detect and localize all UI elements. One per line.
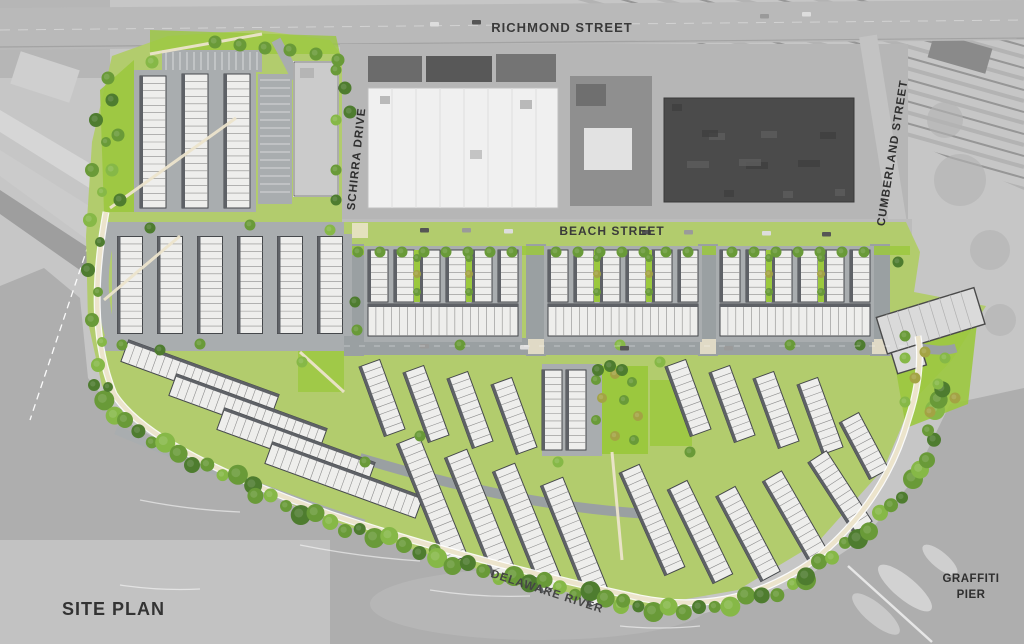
townhouse-row: [278, 237, 303, 334]
parked-car: [430, 22, 439, 27]
graffiti-pier-label-line1: GRAFFITI: [938, 572, 1004, 588]
townhouse-row: [720, 304, 870, 336]
townhouse-row: [772, 250, 792, 302]
townhouse-row: [600, 250, 620, 302]
townhouse-row: [542, 370, 562, 450]
townhouse-row: [720, 250, 740, 302]
townhouse-row: [420, 250, 440, 302]
townhouse-row: [140, 76, 166, 208]
parking-lot: [162, 50, 262, 72]
townhouse-row: [224, 74, 250, 208]
parked-car: [822, 232, 831, 237]
parked-car: [802, 12, 811, 17]
graffiti-pier-label-line2: PIER: [938, 588, 1004, 604]
townhouse-row: [368, 250, 388, 302]
parked-car: [504, 229, 513, 234]
townhouse-row: [394, 250, 414, 302]
townhouse-row: [574, 250, 594, 302]
townhouse-row: [498, 250, 518, 302]
graffiti-pier-label: GRAFFITI PIER: [938, 572, 1004, 603]
townhouse-row: [368, 304, 518, 336]
parked-car: [762, 231, 771, 236]
townhouse-row: [678, 250, 698, 302]
townhouse-row: [198, 237, 223, 334]
townhouse-row: [446, 250, 466, 302]
townhouse-row: [472, 250, 492, 302]
townhouse-row: [566, 370, 586, 450]
townhouse-row: [626, 250, 646, 302]
richmond-street-label: RICHMOND STREET: [462, 20, 662, 35]
parked-car: [760, 14, 769, 19]
townhouse-row: [850, 250, 870, 302]
beach-street-label: BEACH STREET: [537, 224, 687, 238]
parked-car: [420, 228, 429, 233]
site-plan-title: SITE PLAN: [62, 599, 165, 620]
townhouse-row: [746, 250, 766, 302]
parked-car: [620, 346, 629, 351]
townhouse-row: [548, 304, 698, 336]
townhouse-row: [798, 250, 818, 302]
townhouse-row: [652, 250, 672, 302]
townhouse-row: [318, 237, 343, 334]
parked-car: [724, 346, 733, 351]
townhouse-row: [548, 250, 568, 302]
apartment-building-nw: [294, 62, 338, 196]
site-plan-map: [0, 0, 1024, 644]
townhouse-row: [238, 237, 263, 334]
townhouse-row: [824, 250, 844, 302]
parked-car: [462, 228, 471, 233]
site-plan-canvas: RICHMOND STREET SCHIRRA DRIVE CUMBERLAND…: [0, 0, 1024, 644]
